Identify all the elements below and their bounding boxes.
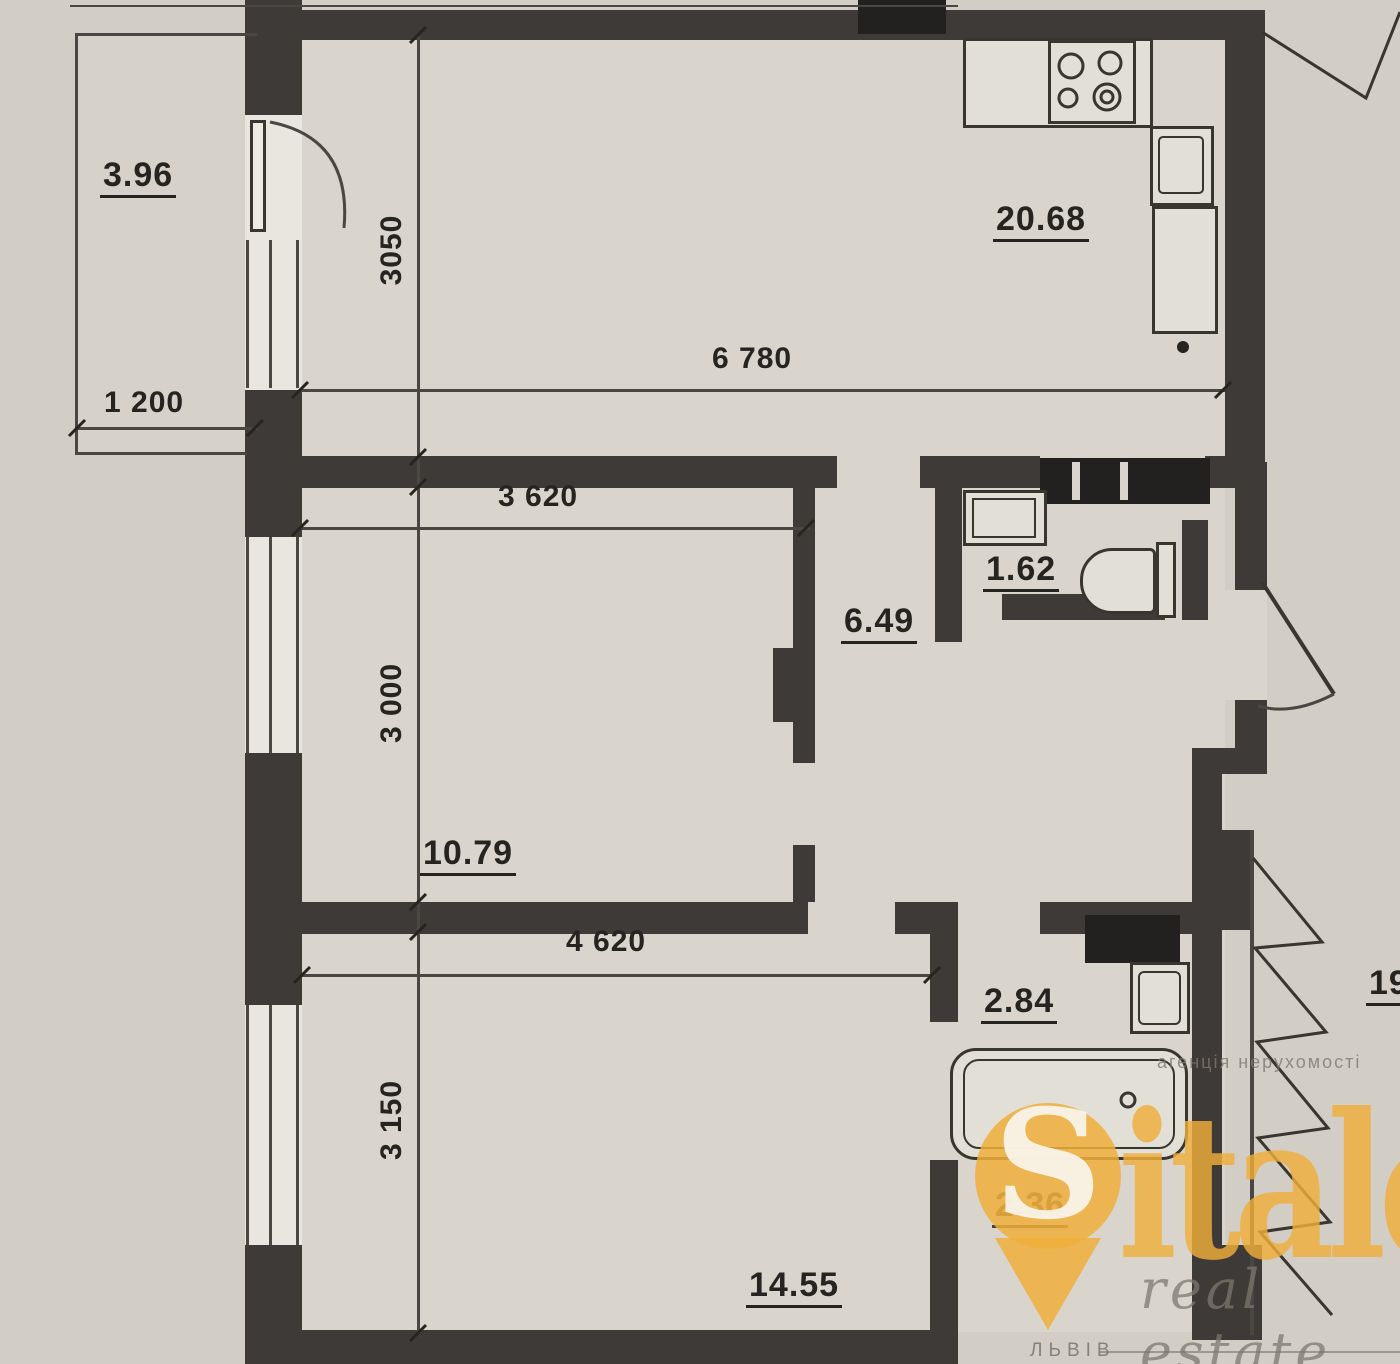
wall-corridor-a [930, 902, 958, 1022]
label-balcony-right: 19 [1366, 966, 1400, 1006]
label-kitchen-living: 20.68 [993, 202, 1089, 242]
wall-corridor-b [930, 1160, 958, 1340]
wall-top [290, 10, 1265, 40]
entry-door-gap [1225, 590, 1267, 700]
dim-line-balcony [75, 427, 258, 430]
balcony-outline-left [75, 33, 78, 455]
kitchen-counter-right [1152, 206, 1218, 334]
wall-left-3 [245, 753, 302, 1005]
dim-kitchen-width: 6 780 [712, 344, 792, 374]
label-bedroom2: 14.55 [746, 1268, 842, 1308]
dim-bedroom1-width: 3 620 [498, 482, 578, 512]
balcony-outline-top [75, 33, 257, 36]
dim-line-bedroom1-w [300, 527, 810, 530]
wall-wc-left [935, 456, 962, 642]
wall-entry-upper [1235, 462, 1267, 590]
dim-bedroom2-depth: 3 150 [377, 1065, 407, 1175]
dim-line-vertical [417, 33, 420, 1333]
wall-mid-a [300, 902, 808, 934]
window-bedroom2 [245, 1005, 302, 1245]
shaft-bath [1085, 915, 1180, 963]
label-balcony-left: 3.96 [100, 158, 176, 198]
dim-bedroom2-width: 4 620 [566, 927, 646, 957]
floor-plan: 3.96 20.68 1.62 6.49 10.79 2.84 14.55 2.… [0, 0, 1400, 1364]
wall-left-2 [245, 390, 302, 537]
watermark-city-line [1100, 1351, 1400, 1353]
dim-line-bedroom2-w [300, 974, 935, 977]
dim-kitchen-depth: 3050 [377, 195, 407, 305]
balcony-door-leaf [250, 120, 266, 232]
label-hallway: 6.49 [841, 604, 917, 644]
dim-balcony-width: 1 200 [104, 388, 184, 418]
dim-bedroom1-depth: 3 000 [377, 648, 407, 758]
toilet-tank [1156, 542, 1176, 618]
balcony-outline-bottom [75, 452, 247, 455]
wall-right-top [1225, 10, 1265, 462]
dim-line-kitchen-w [300, 389, 1225, 392]
wall-left-1 [245, 0, 302, 118]
wall-wc-top [960, 456, 1040, 488]
wall-wc-right [1182, 520, 1208, 620]
wall-bottom [245, 1330, 958, 1364]
toilet-bowl [1080, 548, 1156, 614]
stove [1048, 40, 1136, 124]
wall-partition-stub [793, 845, 815, 902]
watermark-tagline: real estate [1140, 1258, 1400, 1364]
window-bedroom1 [245, 537, 302, 753]
label-bathroom: 2.84 [981, 984, 1057, 1024]
label-wc: 1.62 [983, 552, 1059, 592]
wall-partition-pier [773, 648, 815, 722]
label-bedroom1: 10.79 [420, 836, 516, 876]
brand-logo-initial: S [975, 1090, 1121, 1240]
